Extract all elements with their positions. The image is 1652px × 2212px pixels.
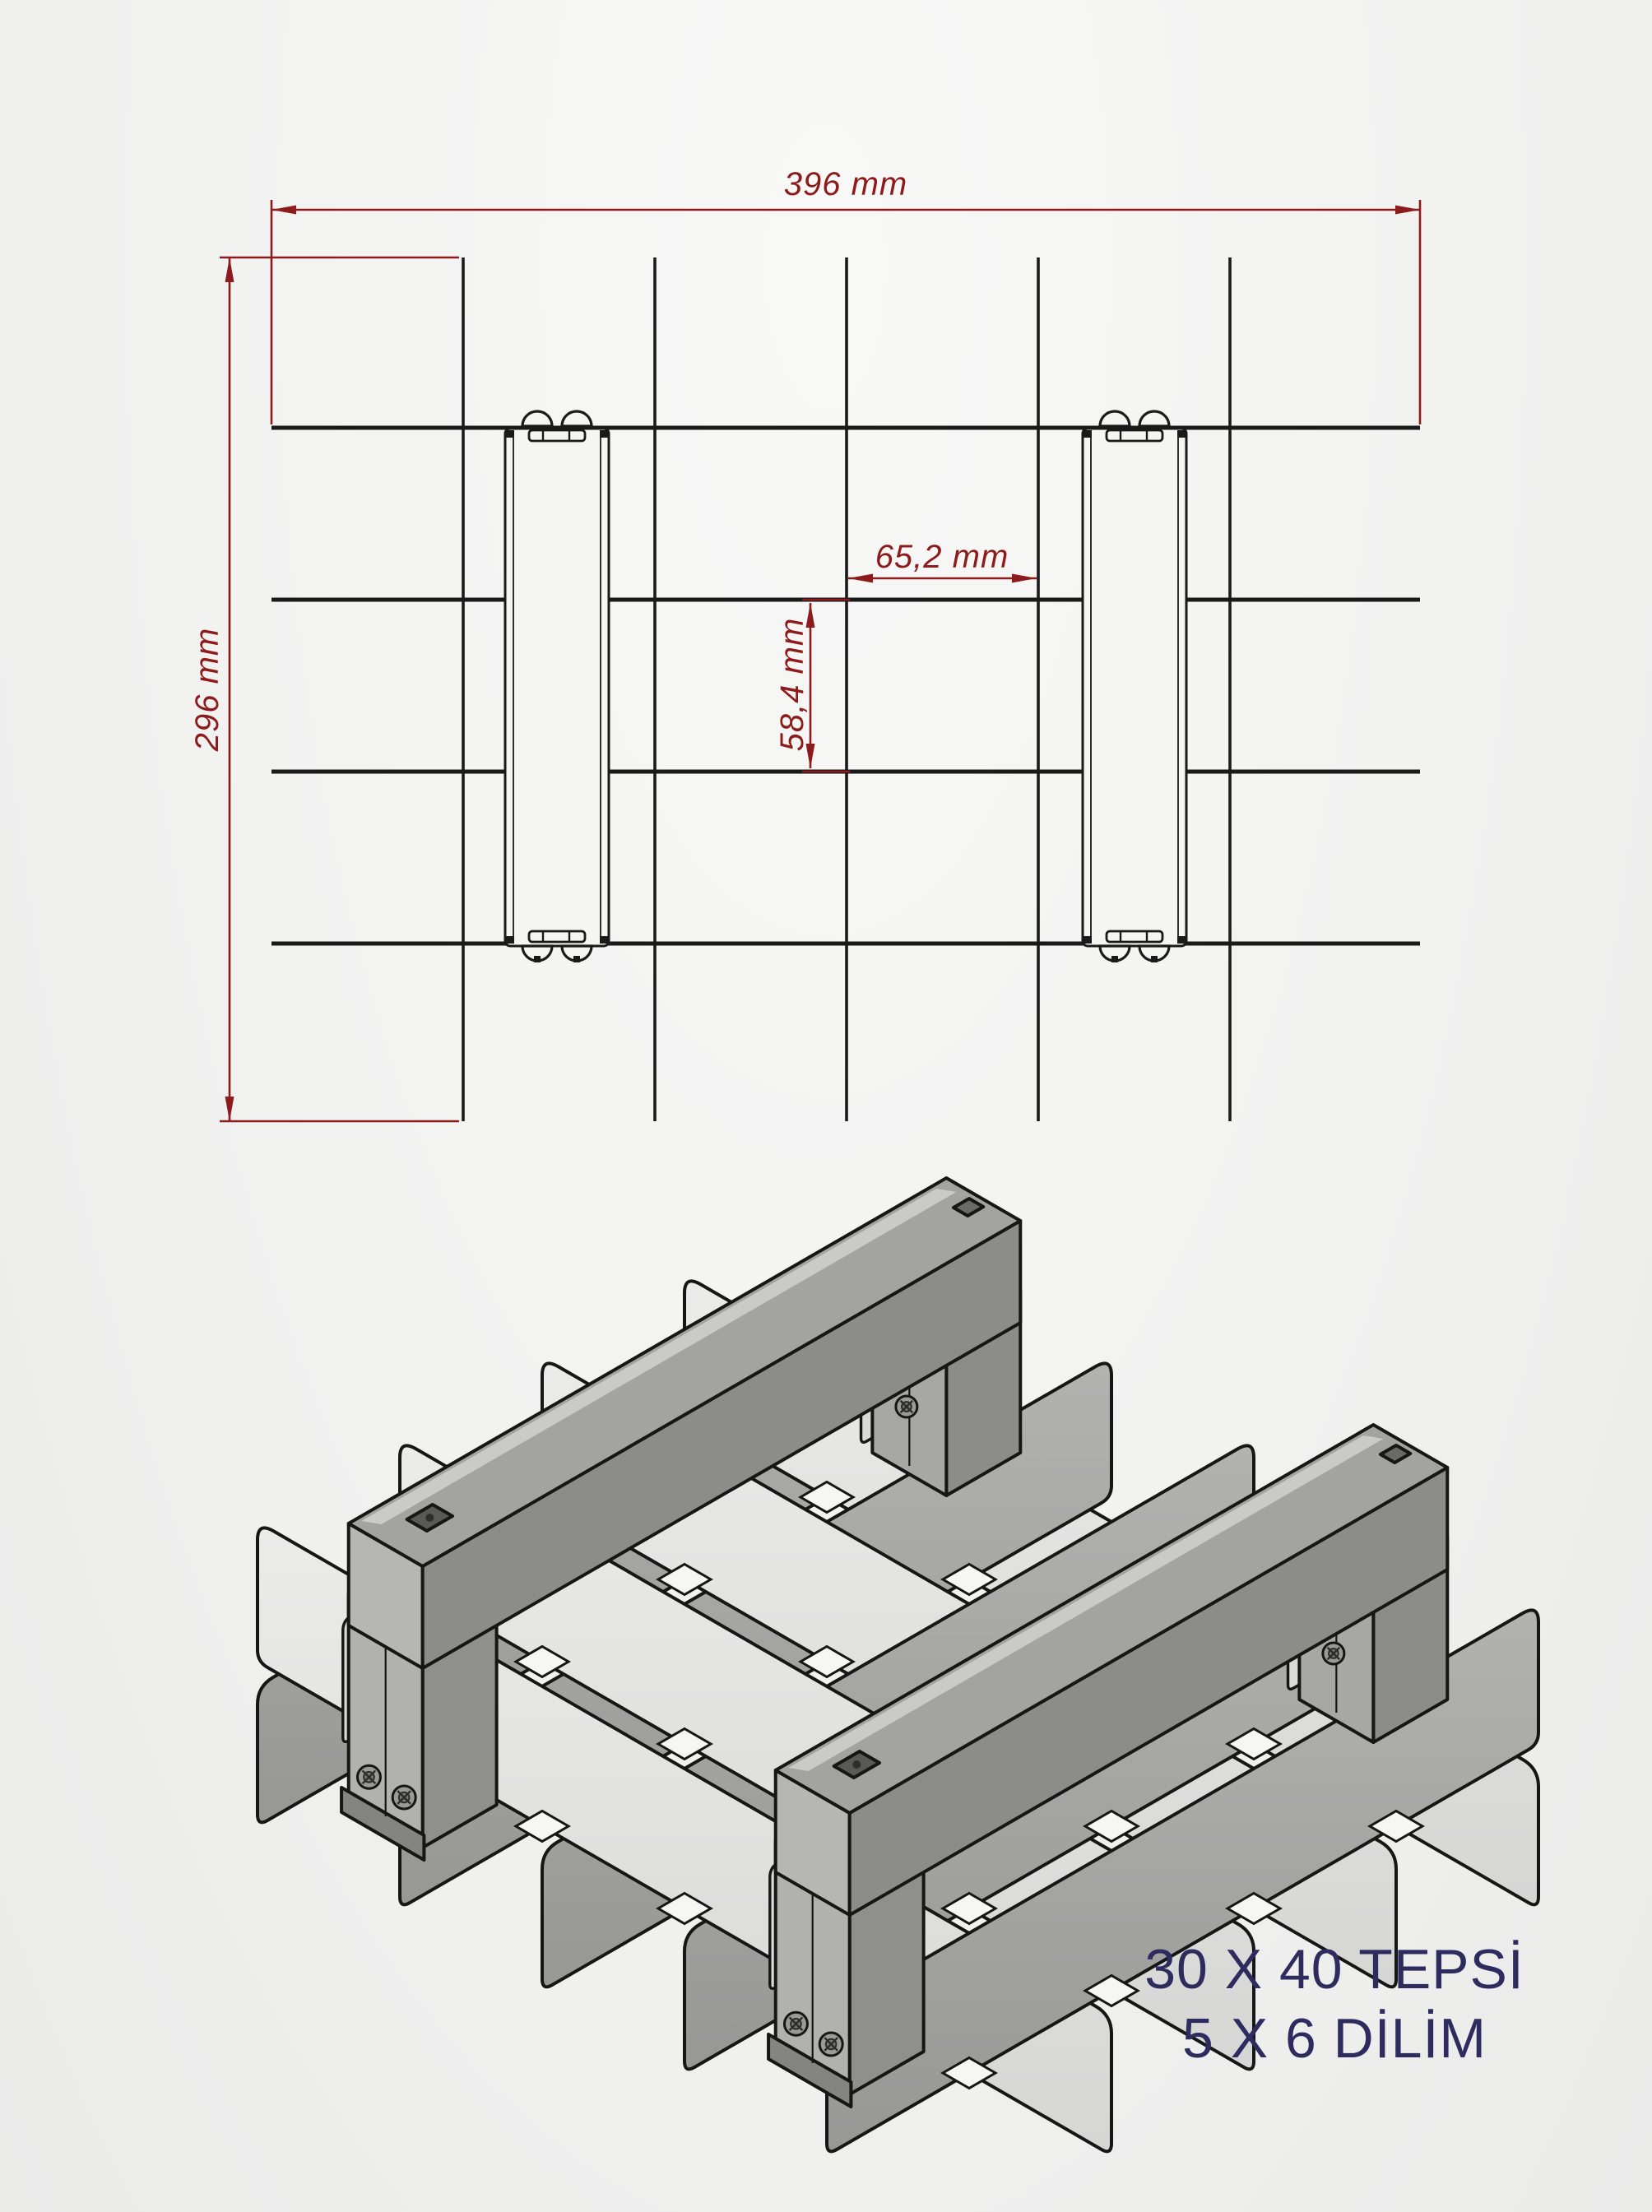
rail-foot [1084,936,1092,944]
handle-rail-plan [505,411,609,962]
screw-head [392,1786,415,1809]
plan-view [220,200,1420,1121]
latch-bracket [1107,931,1162,942]
caption-line-1: 30 X 40 TEPSİ [1046,1935,1622,2004]
plan-grid [271,257,1420,1121]
latch-hook [1100,411,1130,426]
screw-head [784,2012,807,2035]
dimension-label-cell-height: 58,4 mm [774,561,810,808]
product-caption: 30 X 40 TEPSİ 5 X 6 DİLİM [1046,1935,1622,2073]
technical-drawing-canvas [0,0,1652,2212]
latch-hook [1139,411,1169,426]
page: 396 mm 296 mm 65,2 mm 58,4 mm 30 X 40 TE… [0,0,1652,2212]
latch-bracket [529,430,585,441]
dimension-label-total-width: 396 mm [722,166,969,202]
handle-rail-plan [1083,411,1186,962]
dimension-label-cell-width: 65,2 mm [819,539,1065,575]
rail-body [505,429,609,946]
rail-foot [1177,936,1186,944]
screw-head [357,1765,380,1788]
dimension-arrow [848,574,873,583]
latch-hook [522,411,552,426]
rail-foot [1084,430,1092,438]
rail-foot [506,430,514,438]
plan-dimensions [220,200,1420,1121]
dimension-arrow [225,257,234,282]
dimension-arrow [225,1097,234,1121]
rail-foot [600,430,608,438]
latch-bracket [529,931,585,942]
dimension-label-total-height: 296 mm [189,566,225,813]
screw-head [1323,1643,1344,1664]
screw-head [896,1396,917,1417]
latch-bracket [1107,430,1162,441]
caption-line-2: 5 X 6 DİLİM [1046,2004,1622,2073]
rail-foot [1177,430,1186,438]
dimension-arrow [1395,206,1420,215]
screw-head [819,2033,842,2056]
rail-foot [600,936,608,944]
rail-body [1083,429,1186,946]
dimension-arrow [271,206,296,215]
latch-hook [562,411,592,426]
rail-foot [506,936,514,944]
dimension-arrow [1012,574,1037,583]
